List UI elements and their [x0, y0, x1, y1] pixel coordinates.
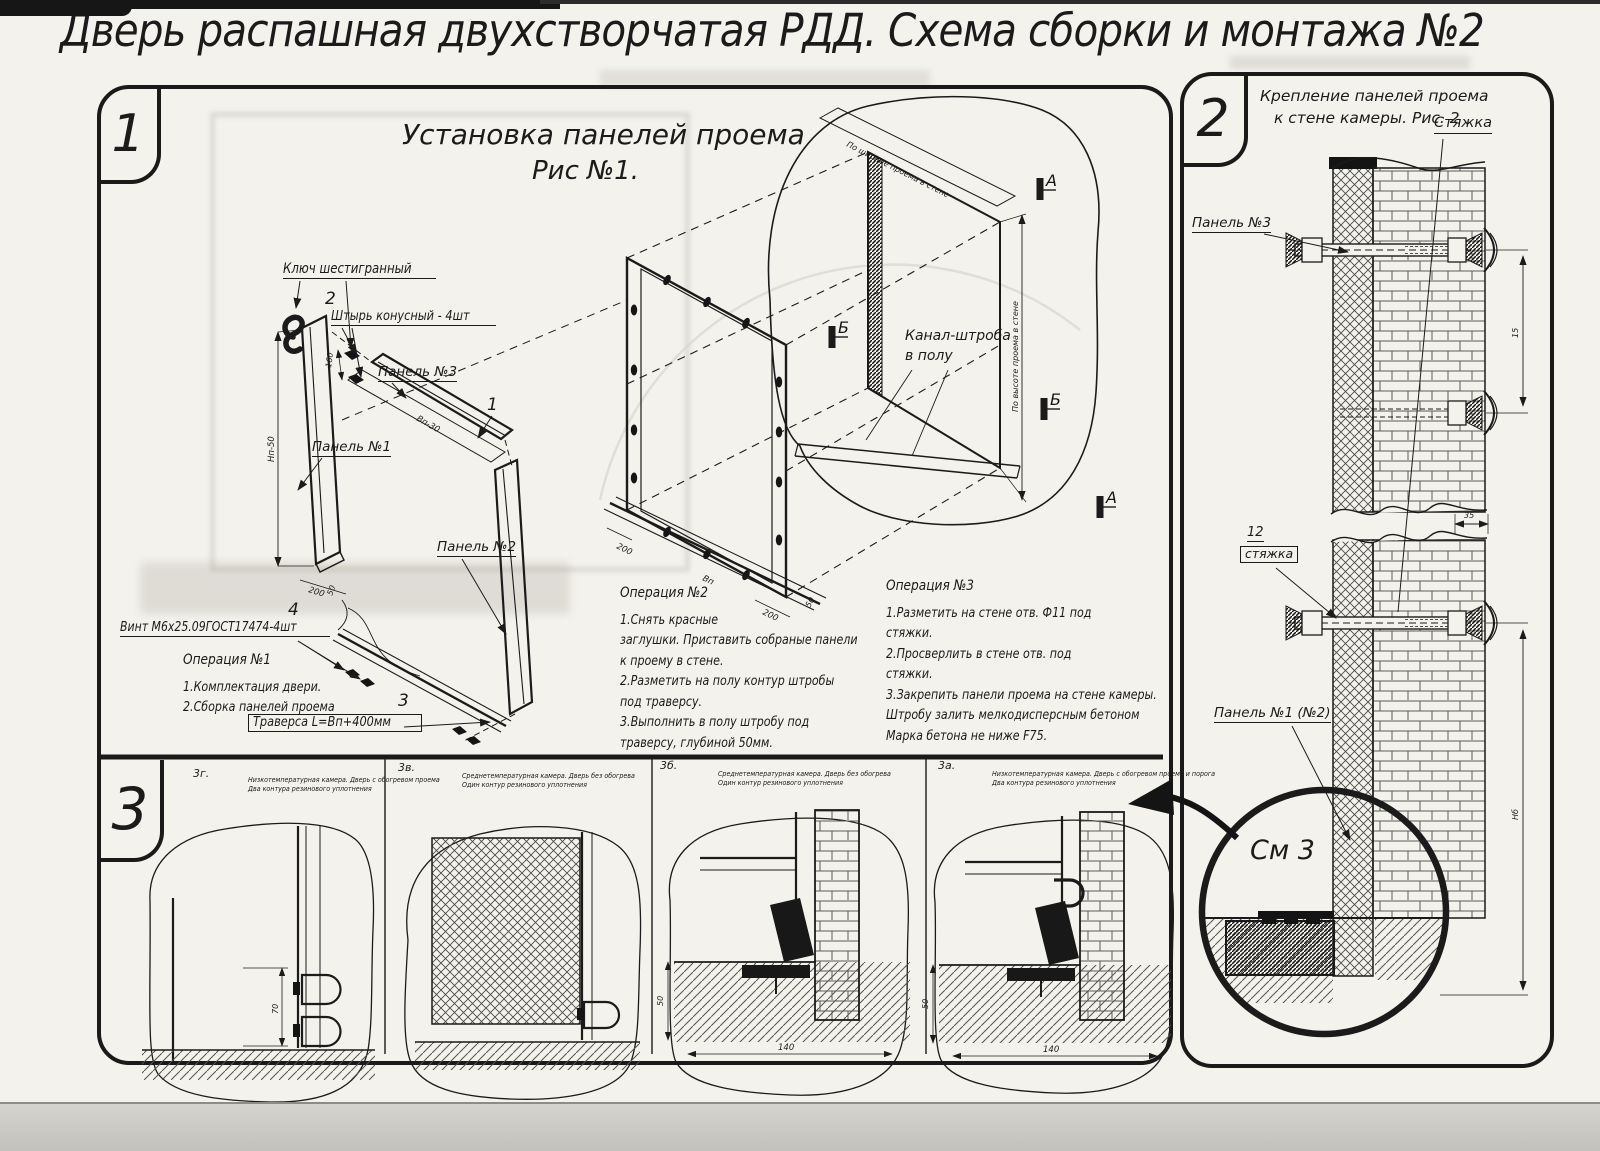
fig3v-desc-line: Среднетемпературная камера. Дверь без об…: [462, 772, 635, 781]
callout-panel3: Панель №3: [378, 365, 457, 382]
fig3b-desc-line: Среднетемпературная камера. Дверь без об…: [718, 770, 891, 779]
figure2-number: 2: [1196, 89, 1229, 149]
fig1-title: Установка панелей проема: [402, 120, 805, 151]
operation-2-line: 1.Снять красные: [620, 611, 858, 632]
fig3g-id: 3г.: [193, 768, 209, 780]
figure3-number: 3: [112, 775, 149, 843]
fig3a-desc-line: Два контура резинового уплотнения: [992, 779, 1215, 788]
callout-hex-key-text: Ключ шестигранный: [283, 262, 412, 277]
callout-fig2-panel3: Панель №3: [1192, 216, 1271, 233]
callout-hex-key: Ключ шестигранный: [283, 262, 436, 279]
ghost-smudge: [260, 1118, 780, 1130]
callout-floor-channel-line2: в полу: [905, 349, 953, 364]
fig3a-description: Низкотемпературная камера. Дверь с обогр…: [992, 770, 1215, 787]
figure1-number-badge: 1: [99, 88, 161, 184]
callout-pin-text: Штырь конусный - 4шт: [331, 309, 470, 324]
operation-2-title: Операция №2: [620, 583, 858, 604]
callout-panel3-number: 1: [487, 396, 498, 415]
operation-3-line: 1.Разметить на стене отв. Ф11 под: [886, 604, 1157, 625]
operation-3-line: стяжки.: [886, 665, 1157, 686]
fig3v-desc-line: Один контур резинового уплотнения: [462, 781, 635, 790]
operation-3-line: 3.Закрепить панели проема на стене камер…: [886, 686, 1157, 707]
callout-pin: Штырь конусный - 4шт: [331, 309, 496, 326]
callout-tie-small: стяжка: [1240, 546, 1298, 563]
operation-2-line: 3.Выполнить в полу штробу под: [620, 713, 858, 734]
callout-tie: Стяжка: [1434, 116, 1492, 134]
scanned-assembly-drawing-sheet: Дверь распашная двухстворчатая РДД. Схем…: [0, 0, 1600, 1151]
callout-tie-number: 12: [1247, 526, 1264, 542]
callout-panel1: Панель №1: [312, 440, 391, 457]
callout-pin-number: 2: [325, 290, 336, 309]
operation-1-title: Операция №1: [183, 650, 335, 671]
fig3a-id: 3а.: [938, 760, 955, 772]
figure3-number-badge: 3: [100, 760, 164, 862]
operation-3-line: стяжки.: [886, 624, 1157, 645]
operation-2-line: 2.Разметить на полу контур штробы: [620, 672, 858, 693]
operation-3-line: Марка бетона не ниже F75.: [886, 727, 1157, 748]
operation-2-line: траверсу, глубиной 50мм.: [620, 734, 858, 755]
callout-floor-channel-line1: Канал-штроба: [905, 329, 1011, 344]
figure1-number: 1: [111, 104, 144, 164]
fig2-title-line2: к стене камеры. Рис. 2: [1274, 110, 1460, 127]
operation-3-text: Операция №3 1.Разметить на стене отв. Ф1…: [886, 576, 1157, 747]
figure2-number-badge: 2: [1182, 75, 1248, 167]
fig3b-desc-line: Один контур резинового уплотнения: [718, 779, 891, 788]
operation-2-text: Операция №2 1.Снять красные заглушки. Пр…: [620, 583, 858, 754]
fig3b-id: 3б.: [660, 760, 677, 772]
operation-1-line: 1.Комплектация двери.: [183, 678, 335, 699]
callout-traverse-number: 3: [398, 692, 409, 711]
operation-2-line: к проему в стене.: [620, 652, 858, 673]
callout-fig2-panel1: Панель №1 (№2): [1214, 706, 1331, 723]
ghost-smudge: [600, 70, 930, 86]
operation-2-line: заглушки. Приставить собраные панели: [620, 631, 858, 652]
fig2-title-line1: Крепление панелей проема: [1260, 88, 1489, 105]
fig3b-description: Среднетемпературная камера. Дверь без об…: [718, 770, 891, 787]
operation-1-line: 2.Сборка панелей проема: [183, 698, 335, 719]
fig3g-desc-line: Два контура резинового уплотнения: [248, 785, 440, 794]
operation-1-text: Операция №1 1.Комплектация двери. 2.Сбор…: [183, 650, 335, 719]
scan-edge-bottom: [0, 1102, 1600, 1151]
operation-2-line: под траверсу.: [620, 693, 858, 714]
ghost-smudge: [1230, 56, 1470, 69]
operation-3-title: Операция №3: [886, 576, 1157, 597]
see-detail-3-label: См 3: [1250, 836, 1315, 866]
operation-3-line: Штробу залить мелкодисперсным бетоном: [886, 706, 1157, 727]
fig3g-description: Низкотемпературная камера. Дверь с обогр…: [248, 776, 440, 793]
fig3a-desc-line: Низкотемпературная камера. Дверь с обогр…: [992, 770, 1215, 779]
fig3v-id: 3в.: [398, 762, 415, 774]
callout-screw: Винт М6х25.09ГОСТ17474-4шт: [120, 621, 330, 637]
figure1-3-frame: [97, 85, 1173, 1065]
fig3g-desc-line: Низкотемпературная камера. Дверь с обогр…: [248, 776, 440, 785]
sheet-title: Дверь распашная двухстворчатая РДД. Схем…: [60, 6, 1484, 56]
operation-3-line: 2.Просверлить в стене отв. под: [886, 645, 1157, 666]
callout-screw-text: Винт М6х25.09ГОСТ17474-4шт: [120, 621, 297, 635]
fig1-subtitle: Рис №1.: [532, 157, 639, 186]
fig3v-description: Среднетемпературная камера. Дверь без об…: [462, 772, 635, 789]
callout-panel2: Панель №2: [437, 540, 516, 557]
callout-screw-number: 4: [288, 601, 299, 620]
